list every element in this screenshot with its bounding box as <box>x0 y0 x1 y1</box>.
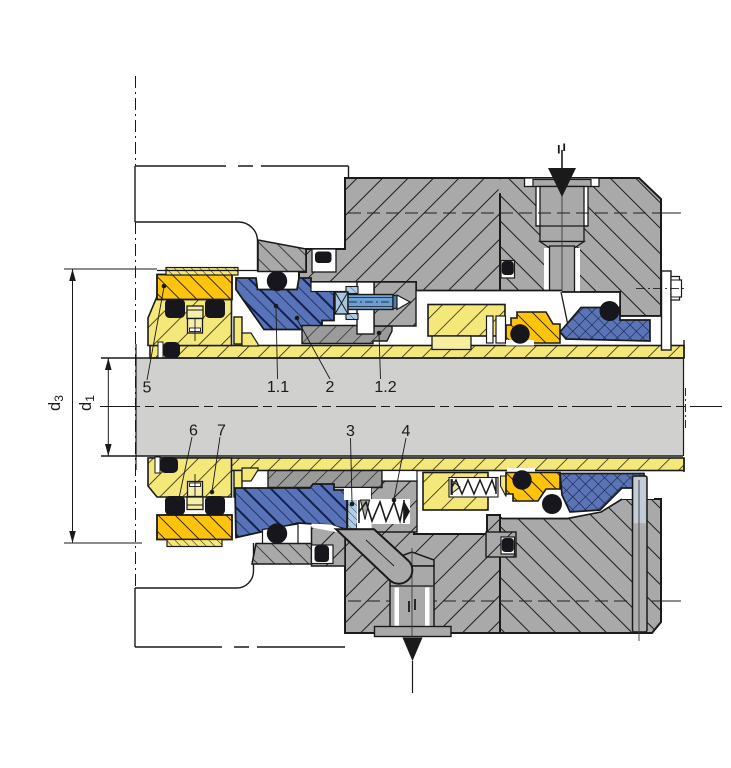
svg-text:7: 7 <box>217 423 226 440</box>
svg-text:2: 2 <box>326 379 335 396</box>
svg-text:5: 5 <box>143 380 152 397</box>
svg-text:1.1: 1.1 <box>267 379 289 396</box>
svg-text:3: 3 <box>346 423 355 440</box>
svg-text:6: 6 <box>189 423 198 440</box>
svg-text:1.2: 1.2 <box>374 379 396 396</box>
svg-text:4: 4 <box>402 423 411 440</box>
